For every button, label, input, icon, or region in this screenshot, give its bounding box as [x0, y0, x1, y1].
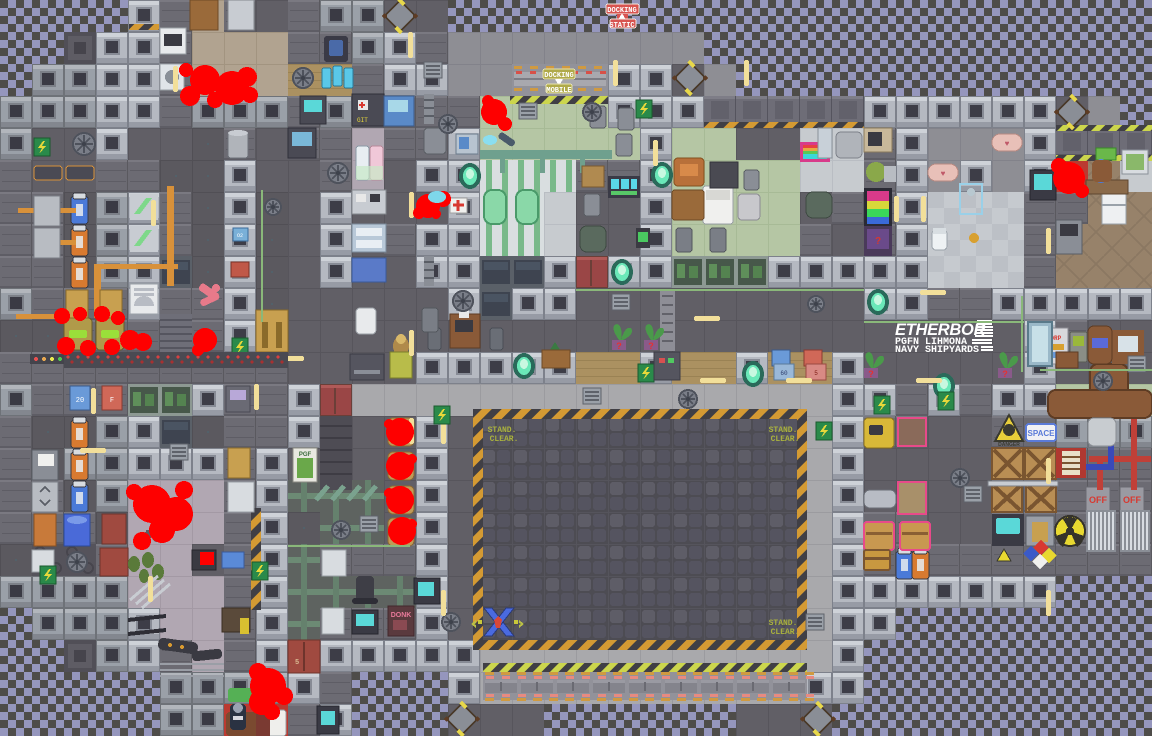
svg-text:MOBILE: MOBILE — [546, 87, 571, 95]
svg-text:STAND.: STAND. — [769, 619, 798, 628]
svg-text:SPACE: SPACE — [1028, 429, 1056, 438]
svg-text:CLEAR.: CLEAR. — [771, 628, 800, 637]
svg-text:?: ? — [1002, 369, 1008, 379]
svg-text:5: 5 — [295, 659, 299, 667]
svg-text:GIT: GIT — [357, 117, 368, 124]
svg-text:DONK: DONK — [391, 612, 412, 619]
svg-text:CLEAR.: CLEAR. — [490, 435, 519, 444]
svg-text:♥: ♥ — [1005, 139, 1010, 148]
svg-text:O2: O2 — [237, 233, 243, 239]
svg-text:?: ? — [616, 341, 622, 351]
svg-text:DOCKING: DOCKING — [544, 72, 573, 80]
svg-text:STAND.: STAND. — [769, 426, 798, 435]
svg-text:?: ? — [875, 236, 881, 247]
svg-text:PGF: PGF — [299, 452, 312, 458]
svg-text:STATIC: STATIC — [609, 22, 634, 30]
svg-text:20: 20 — [76, 397, 84, 405]
svg-text:5: 5 — [814, 370, 818, 377]
svg-text:OFF: OFF — [1089, 495, 1107, 505]
svg-text:F: F — [110, 397, 114, 405]
svg-text:STAND.: STAND. — [488, 426, 517, 435]
svg-text:?: ? — [648, 341, 654, 351]
svg-text:NAVY SHIPYARDS: NAVY SHIPYARDS — [895, 345, 979, 356]
svg-text:OFF: OFF — [1123, 495, 1141, 505]
svg-text:?: ? — [868, 369, 874, 379]
svg-text:♥: ♥ — [941, 169, 946, 178]
svg-text:60: 60 — [780, 370, 788, 377]
svg-text:CLEAR.: CLEAR. — [771, 435, 800, 444]
